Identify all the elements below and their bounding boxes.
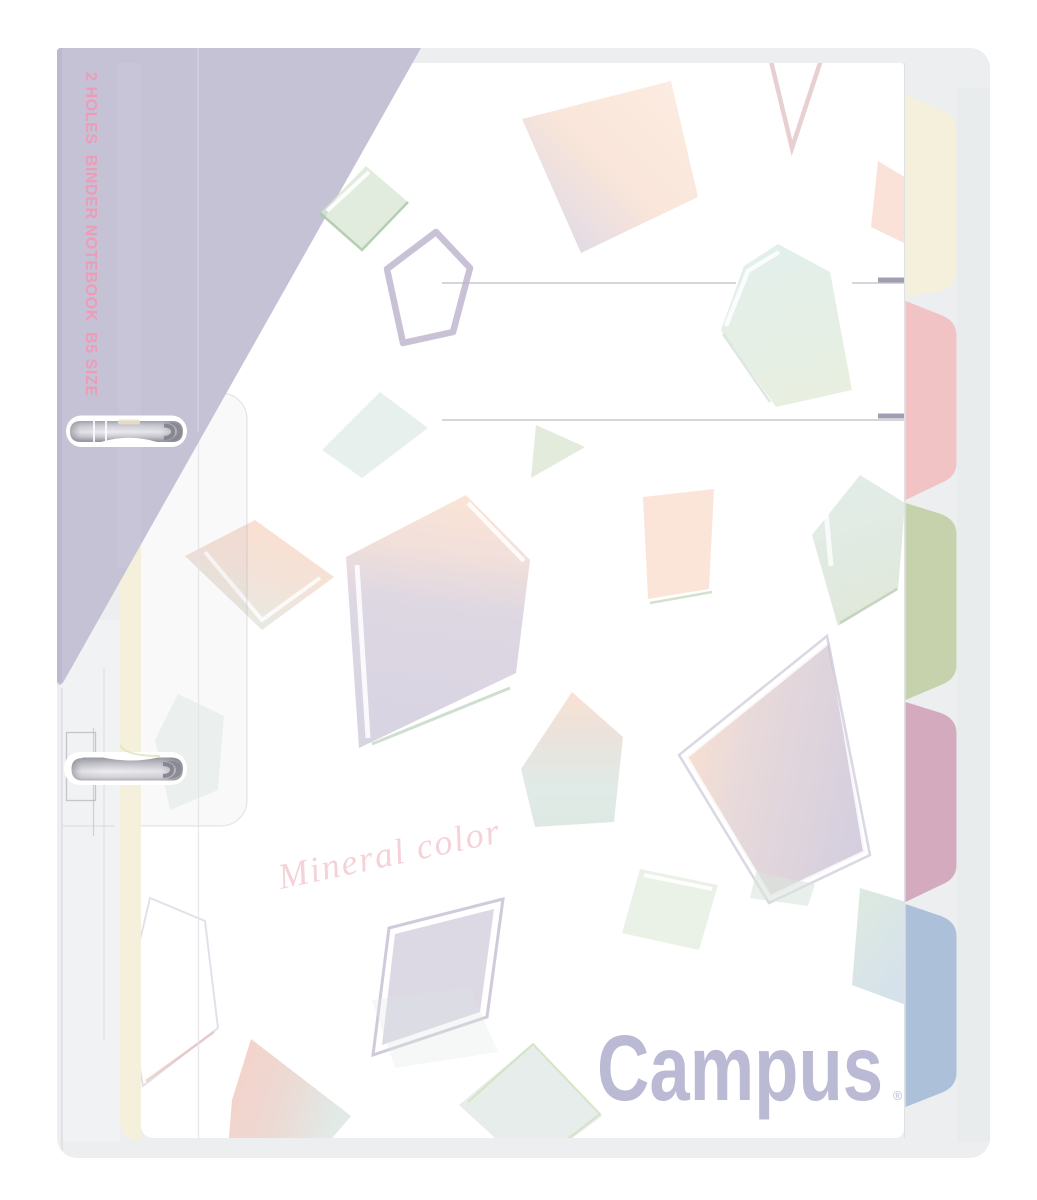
- svg-text:2 HOLES BINDER NOTEBOOK B5 S: 2 HOLES BINDER NOTEBOOK B5 SIZE: [82, 72, 99, 396]
- svg-text:®: ®: [893, 1089, 903, 1103]
- svg-text:Campus: Campus: [597, 1016, 883, 1120]
